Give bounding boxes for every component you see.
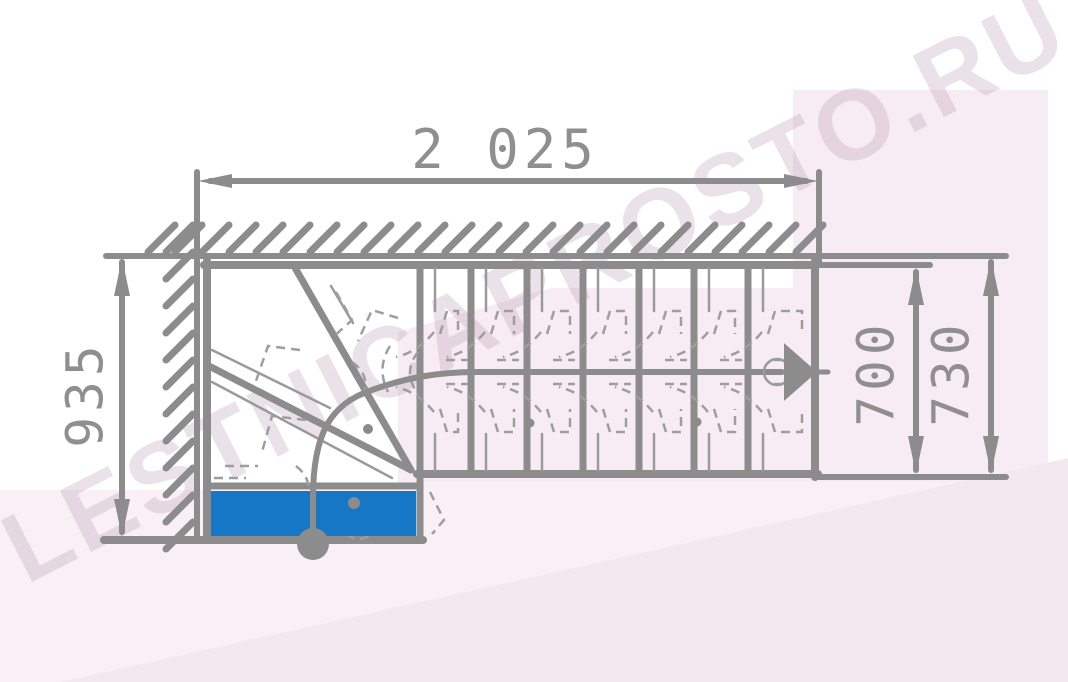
tread-module-lower — [714, 409, 735, 432]
dimension-label-flight-outer: 730 — [927, 319, 978, 426]
hatch-stroke — [391, 225, 418, 252]
tread-module-lower — [491, 409, 514, 432]
hatch-stroke — [283, 225, 310, 252]
fan-arc-lower — [559, 387, 597, 412]
fan-arc-upper — [670, 332, 708, 357]
hatch-stroke — [526, 225, 553, 252]
joint-dot-2 — [526, 419, 535, 428]
tread-module-lower — [603, 409, 626, 432]
fan-arc-upper — [615, 332, 653, 357]
fan-arc-upper — [559, 332, 597, 357]
hatch-stroke — [445, 225, 472, 252]
dim-arrow-left-icon — [198, 174, 232, 188]
fan-arc-lower — [396, 387, 434, 412]
hatch-stroke — [634, 225, 661, 252]
hatch-stroke — [472, 225, 499, 252]
hatch-stroke — [364, 225, 391, 252]
dim-arrow-down-icon — [908, 436, 924, 474]
fan-arc-upper — [396, 332, 434, 357]
fan-arc-upper — [503, 332, 541, 357]
tread-module-lower — [440, 409, 458, 432]
dimension-label-left-depth: 935 — [61, 340, 112, 447]
hatch-stroke — [418, 225, 445, 252]
tread-module-lower — [659, 409, 681, 432]
tread-module-upper — [547, 311, 570, 334]
fan-arc-upper — [724, 332, 762, 357]
hatch-stroke — [310, 225, 337, 252]
tread-module-upper — [768, 311, 802, 334]
dimension-line-flight-outer — [983, 258, 999, 474]
hatch-stroke — [202, 225, 229, 252]
wall-hatch-top — [148, 225, 823, 252]
dimension-label-flight-inner: 700 — [852, 319, 903, 426]
hatch-stroke — [661, 225, 688, 252]
hatch-stroke — [166, 441, 193, 468]
fan-arc-upper — [447, 332, 485, 357]
joint-dot-first-step — [348, 497, 360, 509]
hatch-stroke — [166, 522, 193, 549]
hatch-stroke — [553, 225, 580, 252]
hatch-stroke — [166, 468, 193, 495]
stair-plan-drawing — [0, 0, 1068, 682]
fan-arc-lower — [503, 387, 541, 412]
hatch-stroke — [688, 225, 715, 252]
hatch-stroke — [499, 225, 526, 252]
dim-arrow-down-icon — [983, 436, 999, 474]
hatch-stroke — [166, 306, 193, 333]
hatch-stroke — [742, 225, 769, 252]
tread-module-upper — [491, 311, 514, 334]
dimension-line-left-depth — [114, 258, 130, 537]
fan-arc-lower — [615, 387, 653, 412]
hatch-stroke — [166, 360, 193, 387]
tread-module-lower — [547, 409, 570, 432]
joint-dot-3 — [693, 418, 702, 427]
dim-arrow-up-icon — [908, 267, 924, 305]
tread-module-lower — [768, 409, 802, 432]
hatch-stroke — [166, 414, 193, 441]
dim-arrow-up-icon — [114, 258, 130, 296]
dimension-label-top-width: 2 025 — [411, 123, 599, 177]
stair-plan-page: { "meta": { "title": "Staircase floor pl… — [0, 0, 1068, 682]
hatch-stroke — [166, 279, 193, 306]
newel-post — [297, 528, 329, 560]
hatch-stroke — [166, 333, 193, 360]
fan-arc-lower — [447, 387, 485, 412]
dim-arrow-down-icon — [114, 499, 130, 537]
hatch-stroke — [715, 225, 742, 252]
fan-arc-lower — [724, 387, 762, 412]
hatch-stroke — [337, 225, 364, 252]
winder-thin-line-1 — [331, 286, 353, 323]
hatch-stroke — [256, 225, 283, 252]
dim-arrow-up-icon — [983, 258, 999, 296]
fan-arc-lower — [670, 387, 708, 412]
hatch-stroke — [229, 225, 256, 252]
tread-module-upper — [659, 311, 681, 334]
hatch-stroke — [166, 387, 193, 414]
hatch-stroke — [607, 225, 634, 252]
tread-module-upper — [440, 311, 458, 334]
hatch-stroke — [580, 225, 607, 252]
tread-module-upper — [603, 311, 626, 334]
wall-hatch-left — [166, 225, 193, 549]
tread-module-upper — [714, 311, 735, 334]
dim-arrow-right-icon — [784, 174, 818, 188]
hatch-stroke — [769, 225, 796, 252]
joint-dot-1 — [363, 424, 373, 434]
hatch-stroke — [166, 495, 193, 522]
